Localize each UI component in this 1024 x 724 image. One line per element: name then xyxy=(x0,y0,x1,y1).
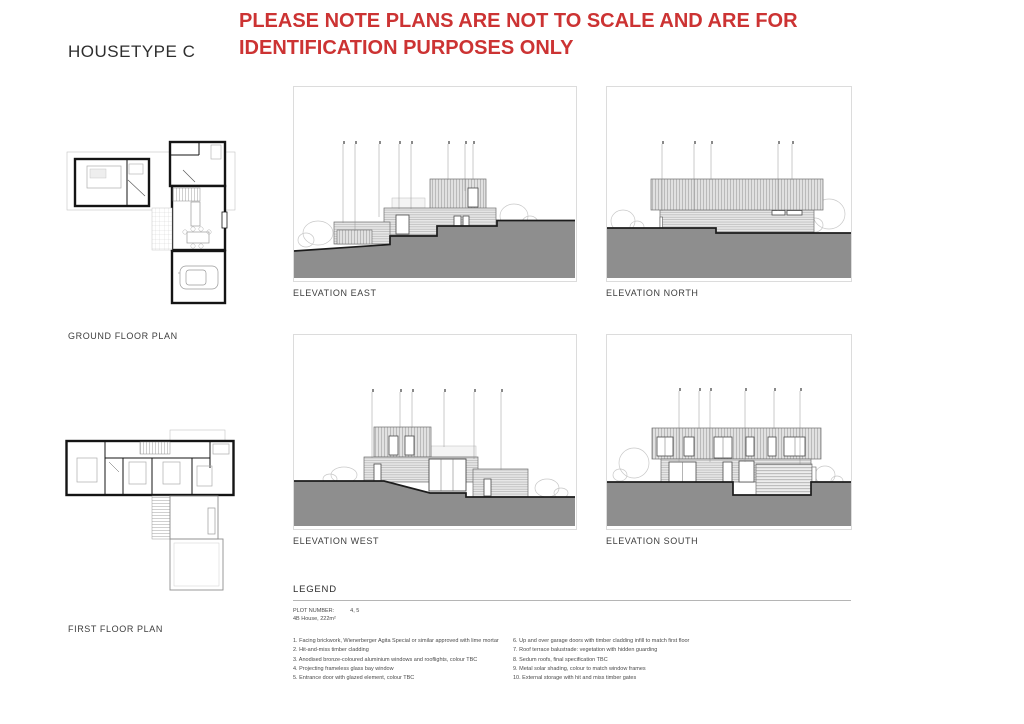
external-stair xyxy=(152,496,170,539)
first-floor-plan-label: FIRST FLOOR PLAN xyxy=(68,624,163,634)
house-info: 4B House, 222m² xyxy=(293,615,336,623)
plan-sheet-page: { "page": { "title": "HOUSETYPE C", "not… xyxy=(0,0,1024,724)
elevation-north-drawing xyxy=(606,86,852,282)
first-floor-plan-drawing xyxy=(65,428,235,614)
elevation-north-label: ELEVATION NORTH xyxy=(606,288,699,298)
elevation-west-label: ELEVATION WEST xyxy=(293,536,379,546)
living-room-wing xyxy=(75,159,149,206)
legend-item: 7. Roof terrace balustrade: vegetation w… xyxy=(513,646,728,655)
legend-divider xyxy=(293,600,851,601)
legend-item: 9. Metal solar shading, colour to match … xyxy=(513,665,728,674)
legend-heading: LEGEND xyxy=(293,584,337,595)
entrance-hall-wing xyxy=(170,142,225,186)
legend-item: 6. Up and over garage doors with timber … xyxy=(513,637,728,646)
rooflight-outline xyxy=(170,430,225,441)
callout-number-marks xyxy=(662,141,794,144)
window xyxy=(405,436,414,455)
window xyxy=(389,436,398,455)
terrace-paving xyxy=(152,208,172,250)
elevation-west-drawing xyxy=(293,334,577,530)
legend-items-right: 6. Up and over garage doors with timber … xyxy=(513,637,728,683)
ground-section xyxy=(607,482,851,526)
window-strip xyxy=(787,211,802,216)
legend-item: 1. Facing brickwork, Wienerberger Agita … xyxy=(293,637,508,646)
glazed-door xyxy=(739,461,754,482)
bay-window-outline xyxy=(392,198,425,208)
callout-number-marks xyxy=(343,141,475,144)
stair-treads xyxy=(140,442,170,454)
garage-door xyxy=(337,230,372,244)
legend-item: 2. Hit-and-miss timber cladding xyxy=(293,646,508,655)
solar-shading-storage xyxy=(756,464,812,495)
ground-floor-plan-label: GROUND FLOOR PLAN xyxy=(68,331,178,341)
door xyxy=(484,479,491,496)
legend-item: 8. Sedum roofs, final specification TBC xyxy=(513,656,728,665)
entrance-door xyxy=(723,462,732,482)
callout-number-marks xyxy=(679,388,802,391)
roof-terrace-lower xyxy=(170,539,223,590)
ground-section xyxy=(607,228,851,278)
plot-number-label: PLOT NUMBER: xyxy=(293,607,334,615)
roof-terrace-outline xyxy=(431,446,476,457)
kitchen-dining-wing xyxy=(172,186,227,250)
plot-number-row: PLOT NUMBER: 4, 5 xyxy=(293,607,359,615)
legend-items-left: 1. Facing brickwork, Wienerberger Agita … xyxy=(293,637,508,683)
glazed-doors xyxy=(429,459,466,491)
elevation-east-label: ELEVATION EAST xyxy=(293,288,377,298)
page-title: HOUSETYPE C xyxy=(68,42,195,62)
window xyxy=(468,188,478,207)
not-to-scale-notice: PLEASE NOTE PLANS ARE NOT TO SCALE AND A… xyxy=(239,8,919,62)
legend-item: 3. Anodised bronze-coloured aluminium wi… xyxy=(293,656,508,665)
window-strip xyxy=(772,211,785,216)
legend-item: 10. External storage with hit and miss t… xyxy=(513,674,728,683)
elevation-south-drawing xyxy=(606,334,852,530)
elevation-south-label: ELEVATION SOUTH xyxy=(606,536,698,546)
building-massing xyxy=(651,179,823,232)
window xyxy=(396,215,409,234)
ground-floor-plan-drawing xyxy=(65,140,245,310)
bedroom-bar xyxy=(67,441,234,495)
elevation-east-drawing xyxy=(293,86,577,282)
legend-item: 4. Projecting frameless glass bay window xyxy=(293,665,508,674)
legend-item: 5. Entrance door with glazed element, co… xyxy=(293,674,508,683)
garage xyxy=(172,251,225,303)
callout-number-marks xyxy=(372,389,503,392)
plot-number-value: 4, 5 xyxy=(350,607,359,615)
roof-terrace-upper xyxy=(170,496,218,539)
entrance-door xyxy=(374,464,381,481)
